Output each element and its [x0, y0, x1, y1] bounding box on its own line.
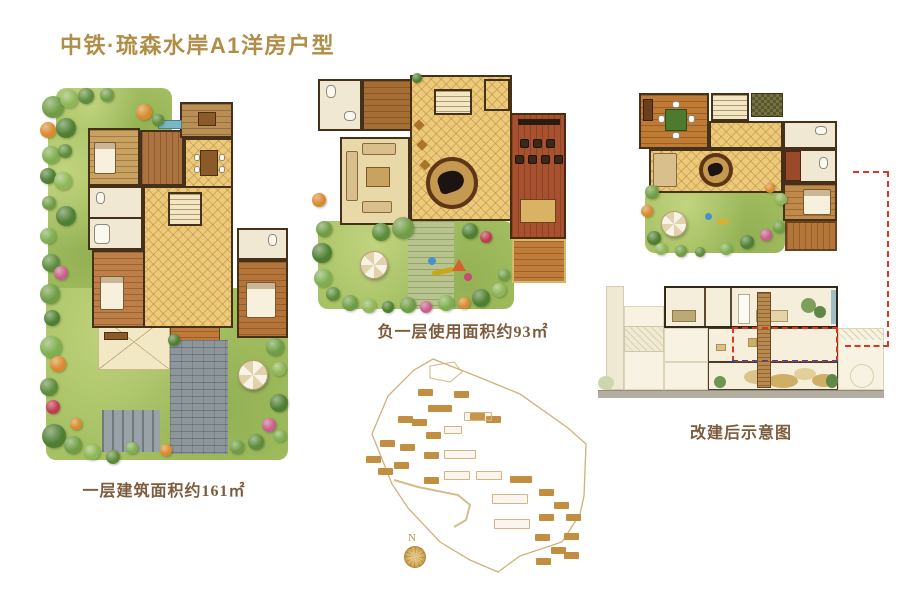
sideboard — [643, 99, 653, 121]
tree-icon — [695, 247, 705, 257]
tree-icon — [400, 297, 416, 313]
tree-icon — [498, 269, 510, 281]
cabinet — [672, 310, 696, 322]
tree-icon — [58, 144, 72, 158]
stairs-icon — [168, 192, 202, 226]
tree-icon — [40, 122, 56, 138]
master-bathroom — [237, 228, 288, 260]
site-building-outline — [430, 362, 462, 382]
garden-toy — [717, 219, 729, 224]
tree-icon — [765, 183, 775, 193]
sink-icon — [344, 111, 356, 121]
theater-seat — [533, 139, 542, 148]
tree-icon — [392, 217, 414, 239]
tree-icon — [40, 378, 58, 396]
study-room — [140, 130, 184, 186]
tree-icon — [40, 228, 56, 244]
toilet-icon — [326, 85, 336, 98]
wall — [88, 217, 143, 219]
piano-rug — [699, 153, 733, 187]
hallway — [709, 121, 783, 149]
theater-seat — [520, 139, 529, 148]
ground-line — [598, 390, 884, 398]
plant-icon — [714, 376, 726, 388]
tree-icon — [362, 299, 376, 313]
umbrella-icon — [238, 360, 268, 390]
garden-bench — [104, 332, 128, 340]
tree-icon — [382, 301, 394, 313]
tree-icon — [100, 88, 114, 102]
tree-icon — [492, 283, 506, 297]
site-building-outline — [492, 494, 528, 504]
tree-icon — [312, 193, 326, 207]
slide-toy — [452, 259, 466, 271]
bush-icon — [598, 376, 614, 390]
tree-icon — [342, 295, 358, 311]
wall — [730, 288, 732, 326]
chair — [194, 166, 200, 173]
page-title: 中铁·琉森水岸A1洋房户型 — [60, 28, 335, 60]
tree-icon — [126, 442, 138, 454]
tree-icon — [56, 206, 76, 226]
site-building-outline — [464, 412, 492, 421]
tree-icon — [775, 193, 787, 205]
spring-rider-toy — [464, 273, 472, 281]
door — [738, 294, 750, 324]
site-building — [454, 391, 469, 398]
bed-icon — [246, 282, 276, 318]
site-building — [366, 456, 381, 463]
toilet-icon — [96, 192, 105, 204]
tree-icon — [70, 418, 82, 430]
tree-icon — [675, 245, 687, 257]
tree-icon — [266, 338, 284, 356]
tree-icon — [248, 434, 264, 450]
tree-icon — [472, 289, 490, 307]
bed-icon — [94, 142, 116, 174]
tree-icon — [316, 221, 332, 237]
upper-floor-plan — [625, 85, 855, 268]
compass-rose-icon — [404, 546, 426, 568]
site-building-outline — [476, 471, 502, 480]
site-building-outline — [494, 519, 530, 529]
storage-nook — [484, 79, 510, 111]
rockery — [768, 374, 798, 388]
theater-seat — [515, 155, 524, 164]
page: 中铁·琉森水岸A1洋房户型 一 — [0, 0, 900, 600]
site-building — [510, 476, 532, 483]
tree-icon — [42, 196, 56, 210]
site-building — [535, 534, 550, 541]
basement-floor-plan — [312, 73, 574, 313]
closet — [785, 151, 801, 181]
chair — [219, 166, 225, 173]
dining-table — [665, 109, 687, 131]
theater-seat — [546, 139, 555, 148]
tree-icon — [641, 205, 653, 217]
tree-icon — [462, 223, 478, 239]
tree-icon — [54, 172, 72, 190]
site-plan: N — [358, 356, 598, 574]
site-building — [418, 389, 433, 396]
toilet-icon — [819, 157, 828, 169]
toilet-icon — [268, 234, 277, 246]
bed-icon — [803, 189, 831, 215]
tree-icon — [850, 364, 874, 388]
tree-icon — [645, 185, 659, 199]
coffee-table — [366, 167, 390, 187]
tree-icon — [46, 400, 60, 414]
tree-icon — [262, 418, 276, 432]
tree-icon — [56, 118, 76, 138]
chimney — [606, 286, 624, 390]
tree-icon — [740, 235, 754, 249]
site-building — [554, 502, 569, 509]
site-building — [564, 533, 579, 540]
site-building — [378, 468, 393, 475]
site-building — [380, 440, 395, 447]
site-building — [539, 489, 554, 496]
sofa-icon — [362, 201, 392, 213]
tree-icon — [50, 356, 66, 372]
tree-icon — [480, 231, 492, 243]
wall — [704, 288, 706, 326]
level-marker-line — [735, 361, 835, 362]
site-building — [428, 405, 452, 412]
site-building — [426, 432, 441, 439]
section-mid-floor-left — [664, 328, 708, 362]
plant-icon — [826, 374, 838, 388]
tree-icon — [372, 223, 390, 241]
tree-icon — [655, 243, 667, 255]
bathtub-icon — [94, 224, 110, 244]
basement-caption: 负一层使用面积约93㎡ — [333, 318, 593, 342]
balcony-deck — [785, 221, 837, 251]
tree-icon — [60, 90, 78, 108]
site-building — [539, 514, 554, 521]
tree-icon — [64, 436, 82, 454]
site-building — [398, 416, 413, 423]
tree-icon — [106, 450, 120, 464]
compass-north-label: N — [408, 532, 416, 544]
bathroom — [783, 121, 837, 149]
site-building-outline — [444, 450, 476, 459]
site-building — [424, 452, 439, 459]
sofa-icon — [362, 143, 396, 155]
site-building — [536, 558, 551, 565]
stone-path — [170, 340, 228, 454]
tree-icon — [42, 424, 66, 448]
tree-icon — [78, 88, 94, 104]
sofa-icon — [653, 153, 677, 187]
stairs-icon — [434, 89, 472, 115]
window — [831, 290, 836, 324]
chair — [658, 115, 665, 123]
tree-icon — [314, 269, 332, 287]
tree-icon — [326, 287, 340, 301]
dining-table — [200, 150, 218, 176]
wood-deck — [512, 239, 566, 283]
tree-icon — [458, 297, 470, 309]
tree-icon — [420, 301, 432, 313]
tree-icon — [760, 229, 772, 241]
tree-icon — [272, 362, 286, 376]
section-basement-left — [664, 362, 708, 390]
bathroom — [318, 79, 362, 131]
tree-icon — [720, 243, 732, 255]
tree-icon — [168, 334, 180, 346]
tree-icon — [773, 221, 785, 233]
chair — [194, 154, 200, 161]
tree-icon — [274, 430, 286, 442]
tree-icon — [40, 336, 62, 358]
cross-section-diagram — [598, 280, 884, 405]
chair — [672, 101, 680, 108]
tree-icon — [270, 394, 288, 412]
theater-seat — [541, 155, 550, 164]
kitchen-island — [198, 112, 216, 126]
sofa-icon — [346, 151, 358, 201]
storage-room — [362, 79, 412, 131]
site-building — [566, 514, 581, 521]
tree-icon — [44, 310, 60, 326]
tree-icon — [136, 104, 152, 120]
site-building — [400, 444, 415, 451]
chair — [688, 115, 695, 123]
game-table — [520, 199, 556, 223]
theater-seat — [528, 155, 537, 164]
highlight-box — [732, 327, 838, 362]
site-building-outline — [444, 426, 462, 434]
plant-icon — [814, 306, 826, 318]
site-building — [424, 477, 439, 484]
hatched-roof — [624, 326, 664, 352]
umbrella-icon — [360, 251, 388, 279]
site-building — [564, 552, 579, 559]
first-floor-plan — [40, 88, 288, 465]
piano-icon — [435, 167, 466, 195]
theater-seat — [554, 155, 563, 164]
bed-icon — [100, 276, 124, 310]
hatched-roof — [838, 328, 884, 340]
tree-icon — [312, 243, 332, 263]
site-building — [412, 419, 427, 426]
highlight-connector-line — [887, 171, 889, 347]
tree-icon — [40, 284, 60, 304]
piano-rug — [426, 157, 478, 209]
tree-icon — [54, 266, 68, 280]
highlight-connector-line — [845, 345, 889, 347]
stairs-icon — [711, 93, 749, 121]
first-floor-caption: 一层建筑面积约161㎡ — [40, 477, 288, 501]
tree-icon — [84, 444, 100, 460]
tree-icon — [412, 73, 422, 83]
tree-icon — [152, 114, 164, 126]
chair — [219, 154, 225, 161]
site-building-outline — [444, 471, 470, 480]
section-caption: 改建后示意图 — [598, 419, 884, 443]
site-building — [394, 462, 409, 469]
tree-icon — [160, 444, 172, 456]
chair — [672, 132, 680, 139]
umbrella-icon — [661, 211, 687, 237]
garden-toy — [705, 213, 712, 220]
spring-rider-toy — [428, 257, 436, 265]
tree-icon — [438, 295, 454, 311]
theater-screen — [518, 119, 560, 125]
sink-icon — [815, 126, 827, 135]
furniture — [716, 344, 726, 351]
highlight-connector-line — [853, 171, 889, 173]
tree-icon — [230, 440, 244, 454]
woven-mat — [751, 93, 783, 117]
piano-icon — [706, 161, 724, 178]
